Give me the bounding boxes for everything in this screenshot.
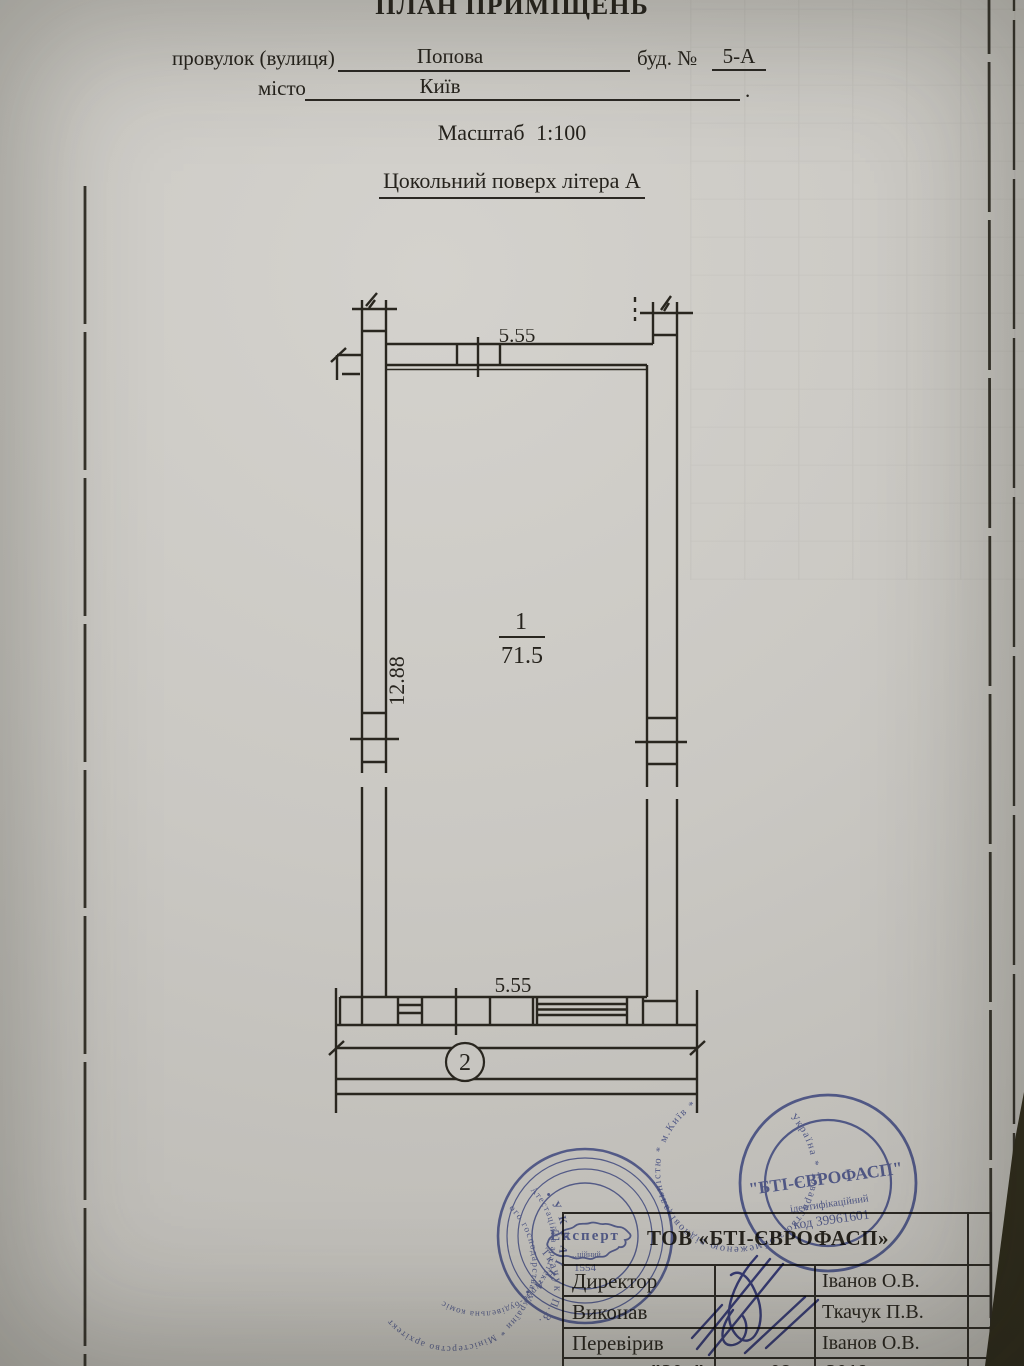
seal-center-word: Експерт (550, 1228, 620, 1244)
pen-signature (692, 1256, 818, 1355)
bti-company-stamp: Україна * Товариство з обмеженою відпові… (652, 1095, 916, 1271)
svg-text:ого господарства України * Мін: ого господарства України * Міністерство … (385, 1203, 540, 1353)
seal-cert-number: 1554 (574, 1262, 597, 1274)
seal-cert-word: …ційний (569, 1250, 601, 1259)
scanned-floor-plan-page: ПЛАН ПРИМІЩЕНЬ провулок (вулиця) Попова … (0, 0, 1024, 1366)
stamp-center-name: "БТІ-ЄВРОФАСП" (748, 1157, 904, 1198)
stamps-svg: ого господарства України * Міністерство … (0, 0, 1024, 1366)
seal-ring-outer-text: ого господарства України * Міністерство … (385, 1203, 540, 1353)
expert-seal-stamp: ого господарства України * Міністерство … (385, 1149, 672, 1354)
